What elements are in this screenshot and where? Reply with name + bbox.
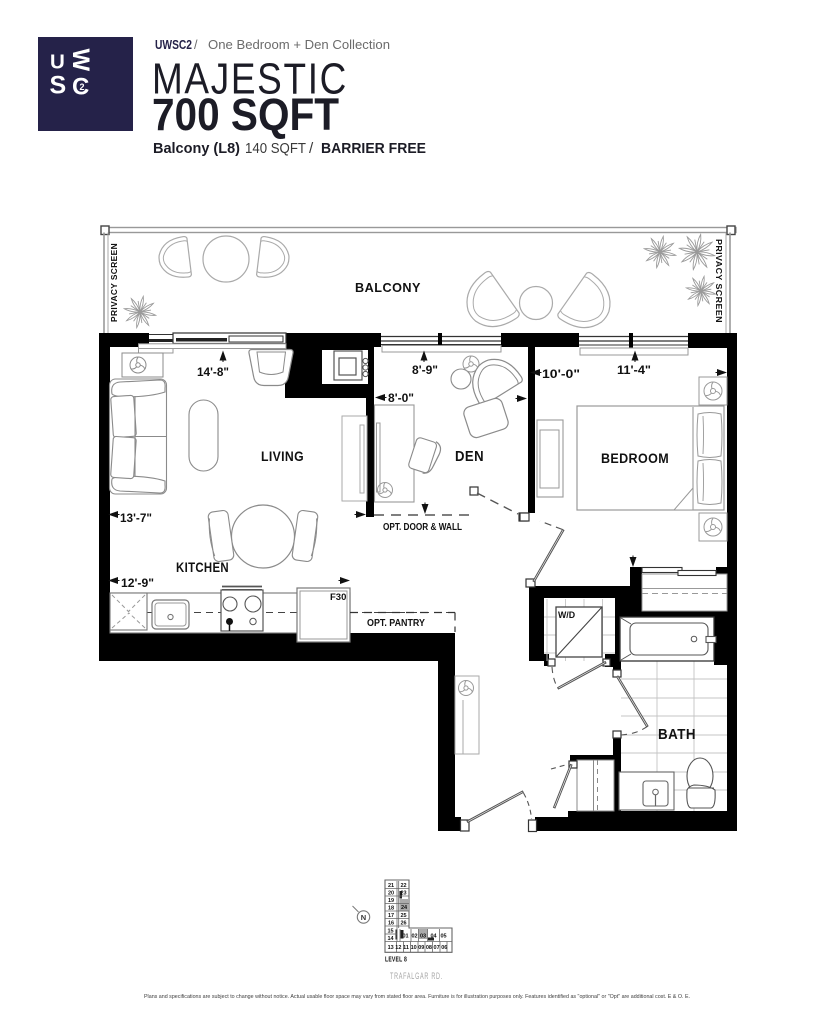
svg-text:09: 09 xyxy=(418,945,424,951)
svg-text:PRIVACY SCREEN: PRIVACY SCREEN xyxy=(714,239,724,323)
svg-text:U: U xyxy=(50,51,65,74)
svg-text:16: 16 xyxy=(388,920,394,926)
svg-text:25: 25 xyxy=(400,913,406,919)
svg-text:OPT. DOOR & WALL: OPT. DOOR & WALL xyxy=(383,522,462,533)
svg-text:26: 26 xyxy=(400,920,406,926)
svg-text:700 SQFT: 700 SQFT xyxy=(152,89,339,140)
svg-text:Balcony (L8): Balcony (L8) xyxy=(153,140,240,157)
svg-text:12'-9": 12'-9" xyxy=(121,578,154,590)
svg-text:20: 20 xyxy=(388,890,394,896)
svg-text:18: 18 xyxy=(388,905,394,911)
svg-text:15: 15 xyxy=(387,929,393,935)
svg-text:02: 02 xyxy=(411,934,417,940)
svg-text:DEN: DEN xyxy=(455,448,484,465)
svg-text:06: 06 xyxy=(441,945,447,951)
svg-text:S: S xyxy=(50,72,67,100)
svg-text:11: 11 xyxy=(403,945,409,951)
svg-text:04: 04 xyxy=(430,934,437,940)
svg-text:12: 12 xyxy=(395,945,401,951)
svg-text:UWSC2: UWSC2 xyxy=(155,37,192,52)
svg-text:8'-9": 8'-9" xyxy=(412,365,438,377)
svg-text:14: 14 xyxy=(387,936,394,942)
svg-text:13: 13 xyxy=(388,945,394,951)
svg-text:19: 19 xyxy=(388,898,394,904)
svg-text:22: 22 xyxy=(400,883,406,889)
svg-text:LEVEL 8: LEVEL 8 xyxy=(385,955,407,964)
svg-text:Plans and specifications are s: Plans and specifications are subject to … xyxy=(144,994,690,1000)
svg-text:8'-0": 8'-0" xyxy=(388,393,414,405)
svg-text:01: 01 xyxy=(402,934,408,940)
svg-text:/: / xyxy=(194,38,198,52)
svg-text:07: 07 xyxy=(434,945,440,951)
svg-text:LIVING: LIVING xyxy=(261,449,304,464)
svg-text:10: 10 xyxy=(411,945,417,951)
svg-text:BATH: BATH xyxy=(658,727,696,743)
svg-text:BALCONY: BALCONY xyxy=(355,281,421,295)
svg-text:10'-0": 10'-0" xyxy=(542,369,580,381)
svg-text:BARRIER FREE: BARRIER FREE xyxy=(321,140,426,157)
svg-text:140 SQFT: 140 SQFT xyxy=(245,140,306,157)
svg-text:KITCHEN: KITCHEN xyxy=(176,560,229,575)
svg-text:24: 24 xyxy=(401,905,408,911)
svg-text:PRIVACY SCREEN: PRIVACY SCREEN xyxy=(109,243,119,322)
svg-text:05: 05 xyxy=(440,934,446,940)
svg-text:17: 17 xyxy=(388,913,394,919)
svg-text:W: W xyxy=(67,49,94,72)
svg-text:03: 03 xyxy=(420,934,426,940)
svg-text:08: 08 xyxy=(426,945,432,951)
svg-text:OPT. PANTRY: OPT. PANTRY xyxy=(367,618,425,629)
svg-text:2: 2 xyxy=(80,82,85,92)
svg-text:W/D: W/D xyxy=(558,610,575,620)
svg-text:One Bedroom + Den Collection: One Bedroom + Den Collection xyxy=(208,38,390,52)
svg-text:N: N xyxy=(361,913,366,922)
svg-text:13'-7": 13'-7" xyxy=(120,513,152,525)
svg-text:14'-8": 14'-8" xyxy=(197,367,229,379)
svg-text:21: 21 xyxy=(388,883,394,889)
svg-text:23: 23 xyxy=(400,890,406,896)
svg-text:BEDROOM: BEDROOM xyxy=(601,451,669,466)
svg-text:11'-4": 11'-4" xyxy=(617,365,651,377)
svg-text:TRAFALGAR RD.: TRAFALGAR RD. xyxy=(390,970,443,981)
svg-text:F30: F30 xyxy=(330,592,346,603)
